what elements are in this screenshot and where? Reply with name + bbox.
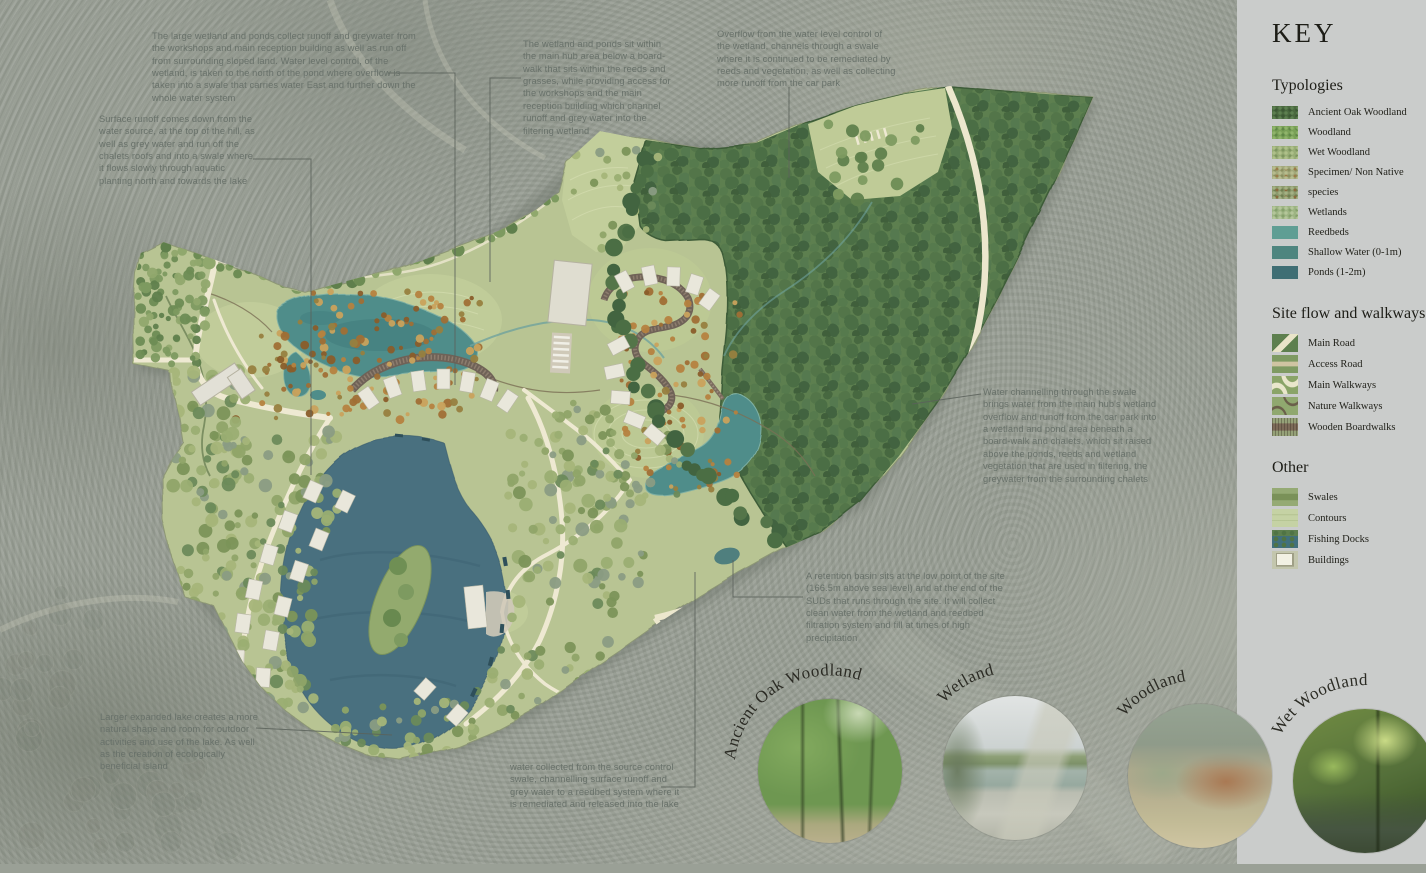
annotation-larger-lake: Larger expanded lake creates a more natu… [100,711,260,773]
legend-item: Ponds (1-2m) [1272,266,1426,279]
legend-item: Main Road [1272,334,1426,352]
main-road-swatch [1272,334,1298,352]
legend-item: Wetlands [1272,206,1426,219]
legend-item: Swales [1272,488,1426,506]
species-swatch [1272,186,1298,199]
legend-item: Contours [1272,509,1426,527]
section-title-walkways: Site flow and walkways [1272,305,1426,323]
reedbeds-swatch [1272,226,1298,239]
annotation-surface-runoff: Surface runoff comes down from the water… [99,113,259,187]
buildings-swatch [1272,551,1298,569]
specimen-non-native-swatch [1272,166,1298,179]
chalet-building [437,369,450,389]
ancient-oak-woodland-photo [758,699,902,843]
swales-swatch [1272,488,1298,506]
legend-item: Shallow Water (0-1m) [1272,246,1426,259]
svg-text:Wetland: Wetland [933,660,995,707]
section-title-other: Other [1272,459,1426,477]
chalet-building [411,370,427,392]
legend-item: Reedbeds [1272,226,1426,239]
chalet-building [230,650,245,669]
legend-item: Main Walkways [1272,376,1426,394]
annotation-hub-boardwalk: The wetland and ponds sit within the mai… [523,38,671,137]
ancient-oak-woodland-swatch [1272,106,1298,119]
chalet-building [227,688,242,708]
legend-item: Specimen/ Non Native [1272,166,1426,179]
legend-item: Wet Woodland [1272,146,1426,159]
legend-walkways: Main Road Access Road Main Walkways Natu… [1272,334,1426,436]
legend-item: Nature Walkways [1272,397,1426,415]
shallow-water-swatch [1272,246,1298,259]
contours-swatch [1272,509,1298,527]
chalet-building [464,585,487,629]
chalet-building [262,630,279,651]
annotation-overflow-swale: Overflow from the water level control of… [717,28,897,90]
section-title-typologies: Typologies [1272,77,1426,95]
legend-item: Wooden Boardwalks [1272,418,1426,436]
main-walkways-swatch [1272,376,1298,394]
chalet-building [611,390,631,404]
photo-wet-woodland: Wet Woodland [1250,643,1426,873]
photo-label: Wetland [933,660,995,707]
legend-item: Buildings [1272,551,1426,569]
fishing-docks-swatch [1272,530,1298,548]
wet-woodland-photo [1293,709,1426,853]
chalet-building [235,613,252,634]
ponds-swatch [1272,266,1298,279]
annotation-large-wetland: The large wetland and ponds collect runo… [152,30,424,104]
annotation-swale-channelling: Water channelling through the swale brin… [983,386,1161,485]
annotation-water-collected: water collected from the source control … [510,761,680,810]
legend-item: Ancient Oak Woodland [1272,106,1426,119]
legend-item: species [1272,186,1426,199]
chalet-building [255,668,270,688]
woodland-swatch [1272,126,1298,139]
wooden-boardwalks-swatch [1272,418,1298,436]
legend-item: Access Road [1272,355,1426,373]
key-title: KEY [1272,18,1426,49]
nature-walkways-swatch [1272,397,1298,415]
wet-woodland-swatch [1272,146,1298,159]
wetland-photo [943,696,1087,840]
legend-typologies: Ancient Oak Woodland Woodland Wet Woodla… [1272,106,1426,279]
legend-item: Woodland [1272,126,1426,139]
chalet-building [667,267,681,286]
wetlands-swatch [1272,206,1298,219]
legend-other: Swales Contours Fishing Docks Buildings [1272,488,1426,569]
access-road-swatch [1272,355,1298,373]
legend-item: Fishing Docks [1272,530,1426,548]
